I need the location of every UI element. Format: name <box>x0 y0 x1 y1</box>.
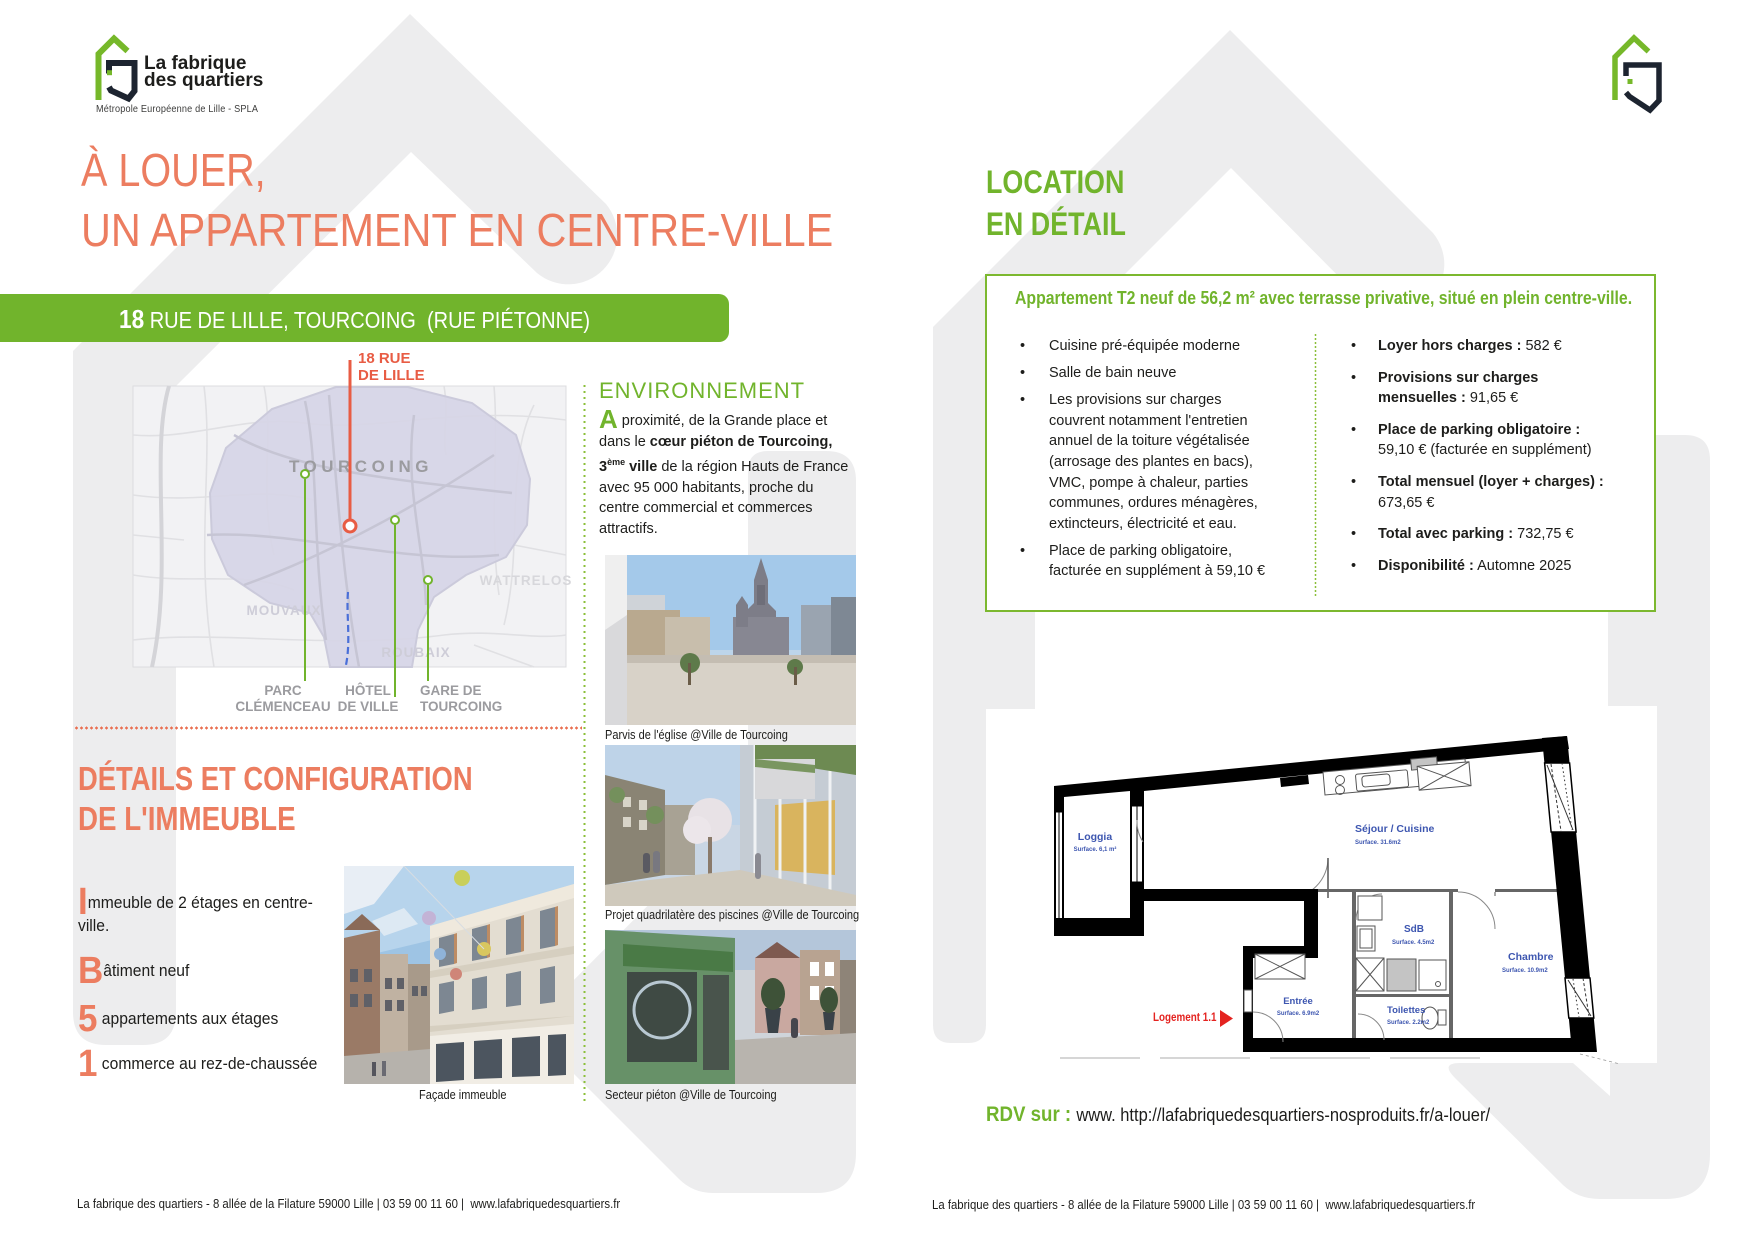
svg-text:Surface. 10.9m2: Surface. 10.9m2 <box>1502 968 1548 974</box>
svg-text:Surface. 31.6m2: Surface. 31.6m2 <box>1355 840 1401 846</box>
svg-text:Entrée: Entrée <box>1283 996 1313 1007</box>
svg-text:Loggia: Loggia <box>1078 831 1113 843</box>
svg-text:Surface. 6.9m2: Surface. 6.9m2 <box>1277 1011 1320 1017</box>
svg-text:Surface. 6,1 m²: Surface. 6,1 m² <box>1074 846 1117 853</box>
svg-text:SdB: SdB <box>1404 924 1424 935</box>
svg-text:WATTRELOS: WATTRELOS <box>480 573 573 588</box>
svg-text:Séjour / Cuisine: Séjour / Cuisine <box>1355 823 1435 835</box>
svg-text:Surface. 4.5m2: Surface. 4.5m2 <box>1392 940 1435 946</box>
svg-text:TOURCOING: TOURCOING <box>289 457 433 476</box>
svg-text:Toilettes: Toilettes <box>1387 1005 1425 1016</box>
svg-text:Chambre: Chambre <box>1508 951 1554 963</box>
svg-text:Surface. 2.2m2: Surface. 2.2m2 <box>1387 1020 1430 1026</box>
svg-text:ROUBAIX: ROUBAIX <box>381 645 450 660</box>
svg-text:MOUVAUX: MOUVAUX <box>246 603 321 618</box>
